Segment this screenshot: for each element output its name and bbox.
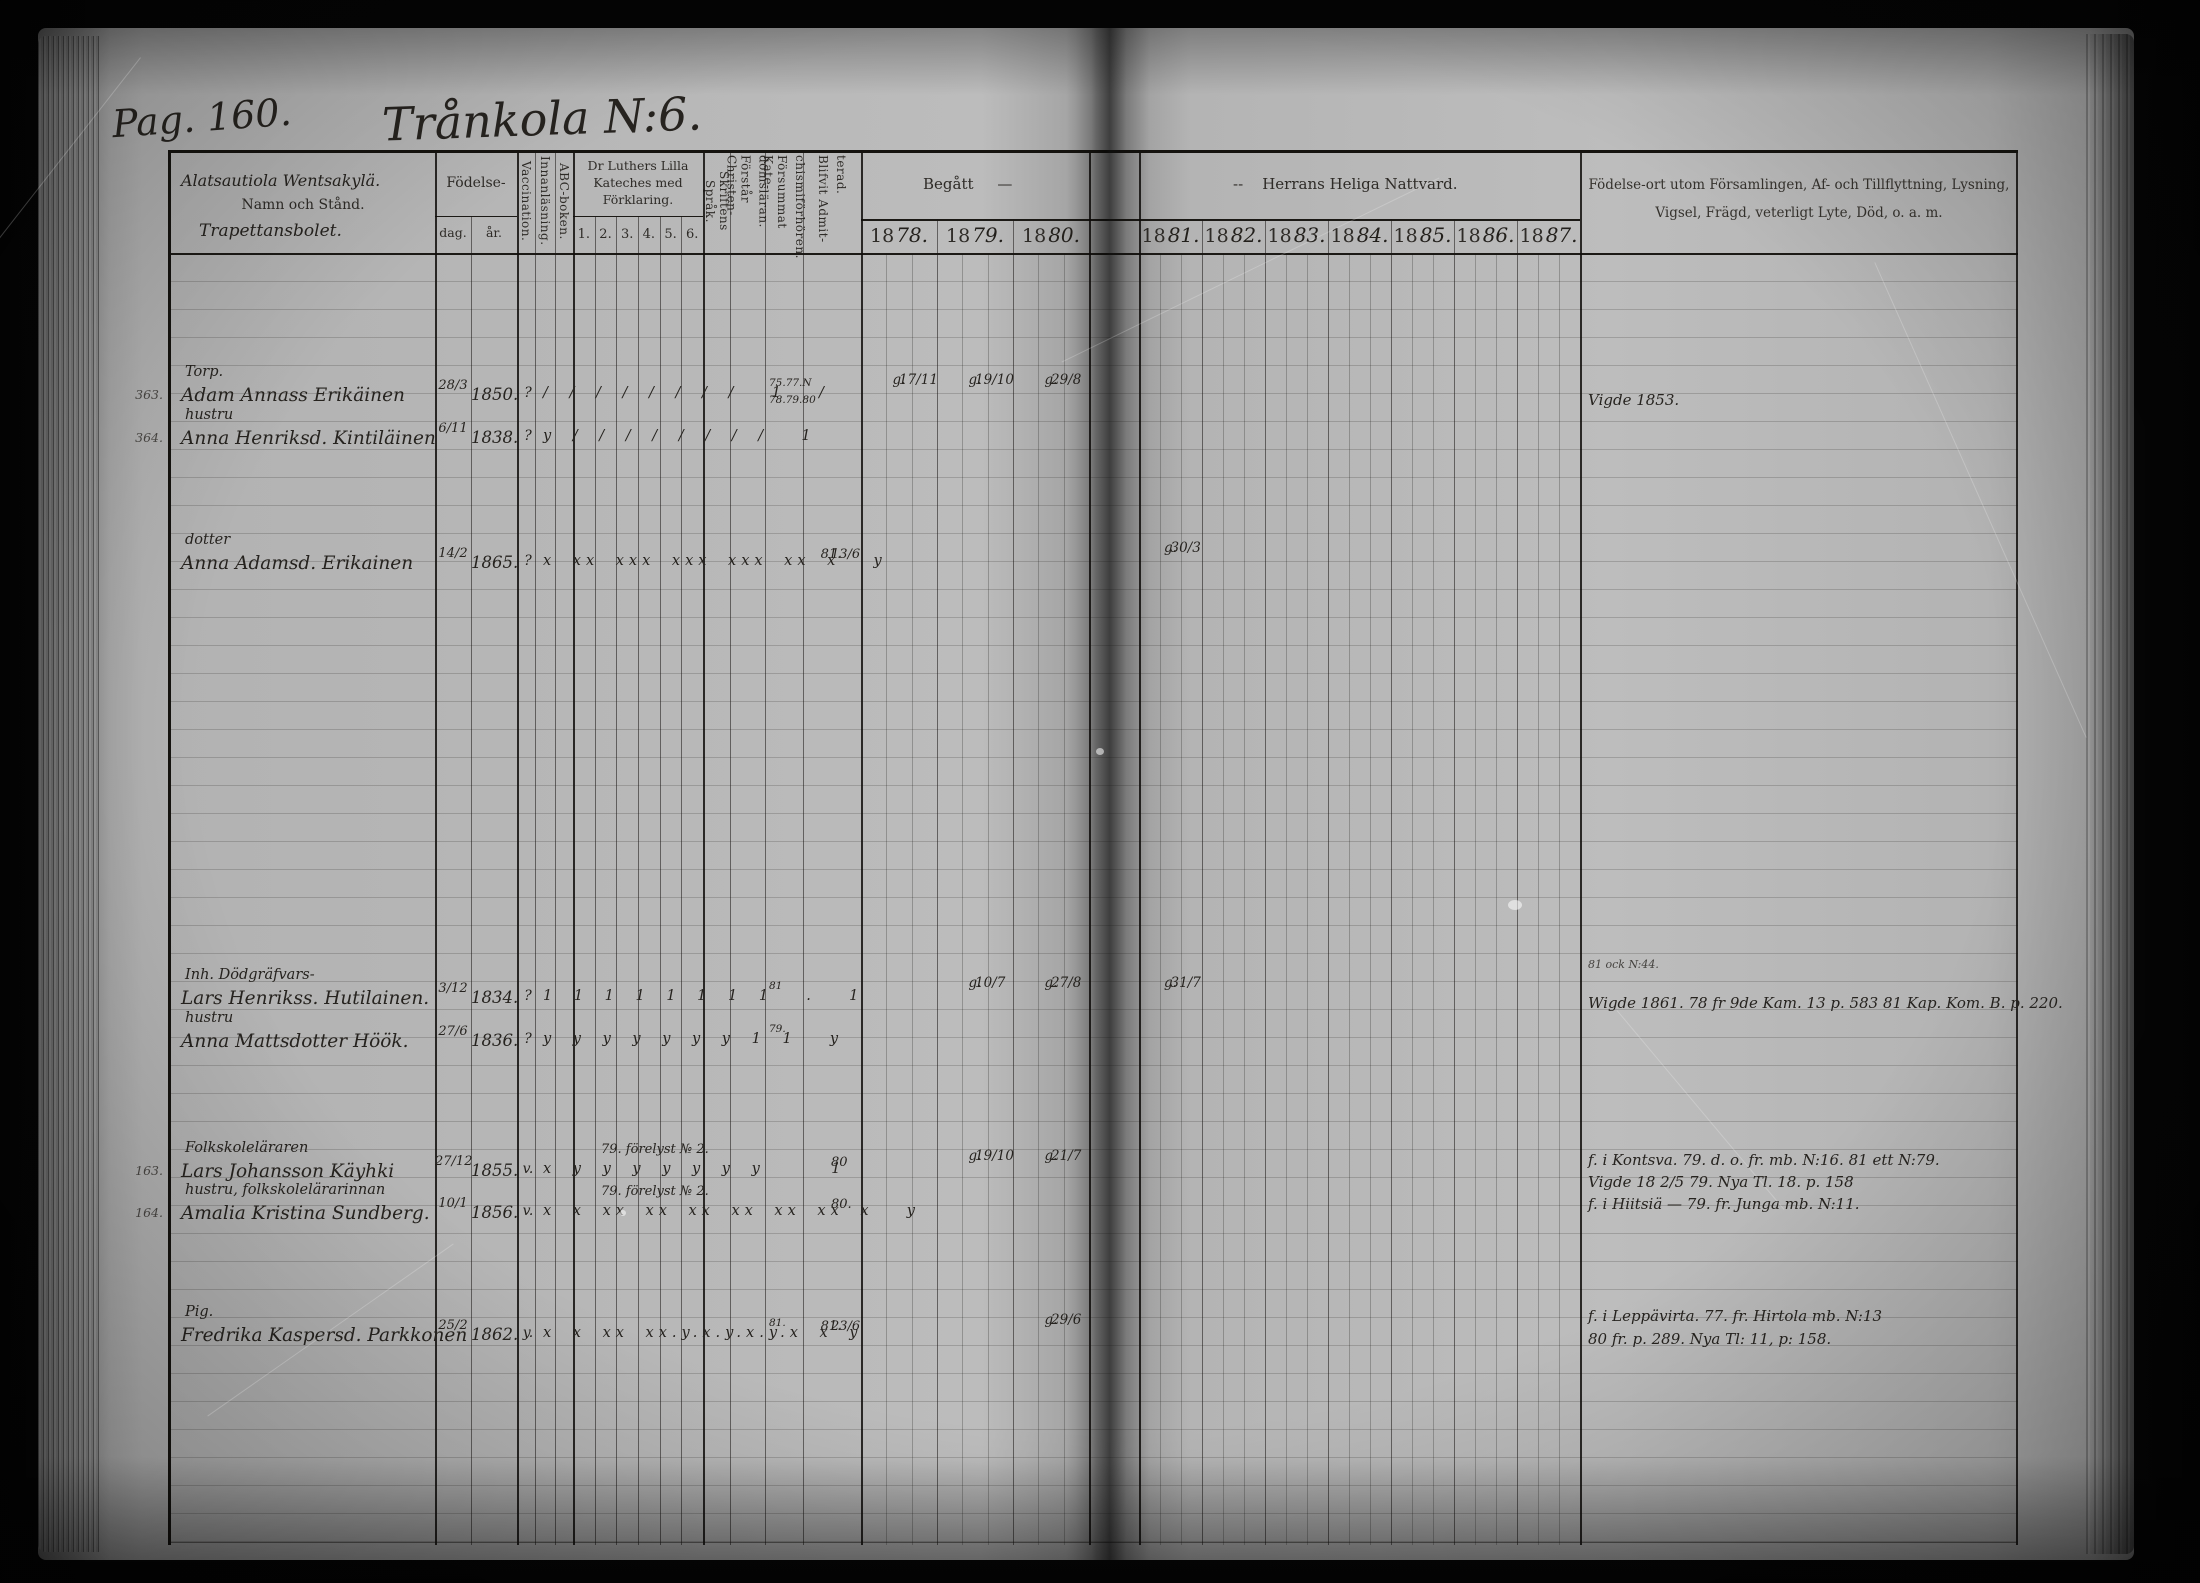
catechism-title-line2: Kateches med <box>573 175 703 190</box>
catechism-3: 3. <box>616 219 638 253</box>
remarks-note: Wigde 1861. 78 fr 9de Kam. 13 p. 583 81 … <box>1588 994 2068 1012</box>
years-top-rule <box>861 219 1580 221</box>
birth-day: 14/2 <box>435 547 471 560</box>
entry-number: 364. <box>117 430 163 445</box>
birth-year: 1855. <box>471 1161 517 1180</box>
catechism-4: 4. <box>638 219 660 253</box>
remarks-note-small: 81 ock N:44. <box>1588 958 1659 971</box>
year-1885: 1885. <box>1391 219 1454 253</box>
catechism-6: 6. <box>681 219 703 253</box>
communion-1881: 30/3g. <box>1139 541 1202 556</box>
page-stack-edge-right <box>2086 34 2134 1554</box>
page-stack-edge-left <box>38 36 100 1552</box>
entry-number: 164. <box>117 1205 163 1220</box>
vaccination-mark: ? <box>518 988 538 1004</box>
vaccination-label: Vaccination. <box>519 153 533 249</box>
admitted-date: 23/681. <box>803 1319 859 1334</box>
communion-label-right: -- Herrans Heliga Nattvard. <box>1233 175 1458 193</box>
year-1886: 1886. <box>1454 219 1517 253</box>
table-row: dotter Anna Adamsd. Erikainen 14/2 1865.… <box>171 553 2018 593</box>
birth-day: 27/12 <box>435 1155 471 1168</box>
header-birth-column: Födelse- dag. år. <box>435 153 517 253</box>
household-label: hustru <box>185 1010 233 1026</box>
birth-year: 1862. <box>471 1325 517 1344</box>
birth-year: 1838. <box>471 428 517 447</box>
year-1878: 1878. <box>861 219 937 253</box>
birth-day: 6/11 <box>435 422 471 435</box>
table-row: Pig. Fredrika Kaspersd. Parkkonen 25/2 1… <box>171 1325 2018 1365</box>
farm-name-handwritten: Trapettansbolet. <box>199 221 342 241</box>
household-label: Folkskoleläraren <box>185 1140 308 1156</box>
examination-marks: x x xx xx xx xx xx xx x y <box>543 1203 765 1219</box>
person-name: Anna Adamsd. Erikainen <box>181 553 435 574</box>
remarks-note: f. i Leppävirta. 77. fr. Hirtola mb. N:1… <box>1588 1307 2068 1325</box>
birth-day-label: dag. <box>435 225 471 240</box>
table-row: Inh. Dödgräfvars- Lars Henrikss. Hutilai… <box>171 988 2018 1028</box>
examination-marks: x y y y y y y y 1 <box>543 1161 765 1177</box>
year-1881: 1881. <box>1139 219 1202 253</box>
table-row: 163. Folkskoleläraren Lars Johansson Käy… <box>171 1161 2018 1201</box>
birth-day: 3/12 <box>435 982 471 995</box>
reading-label: Innanläsning. <box>538 153 552 249</box>
person-name: Lars Henrikss. Hutilainen. <box>181 988 435 1009</box>
person-name: Anna Mattsdotter Höök. <box>181 1031 435 1052</box>
admitted-label-line2: terad. <box>834 155 848 251</box>
examination-marks: x x xx xx.y.x.y.x.y.x x y <box>543 1325 765 1341</box>
household-label: dotter <box>185 532 230 548</box>
person-name: Fredrika Kaspersd. Parkkonen <box>181 1325 435 1346</box>
catechism-2: 2. <box>595 219 617 253</box>
remarks-note: Vigde 18 2/5 79. Nya Tl. 18. p. 158 <box>1588 1173 2068 1191</box>
birth-year: 1865. <box>471 553 517 572</box>
vaccination-mark: ? <box>518 385 538 401</box>
year-1880: 1880. <box>1013 219 1089 253</box>
table-row: 364. hustru Anna Henriksd. Kintiläinen 6… <box>171 428 2018 468</box>
birth-year: 1856. <box>471 1203 517 1222</box>
abc-book-label: ABC-boken. <box>557 153 571 249</box>
notes-header-line2: Vigsel, Frägd, veterligt Lyte, Död, o. a… <box>1580 205 2018 221</box>
vaccination-mark: y. <box>518 1325 538 1341</box>
examination-marks: y y y y y y y 1 1 y <box>543 1031 765 1047</box>
vaccination-mark: ? <box>518 428 538 444</box>
household-label: Pig. <box>185 1304 213 1320</box>
communion-label-left: Begått — <box>923 175 1012 193</box>
birth-day: 10/1 <box>435 1197 471 1210</box>
notes-header-line1: Födelse-ort utom Församlingen, Af- och T… <box>1580 177 2018 193</box>
banns-note: 79. förelyst № 2. <box>601 1184 841 1199</box>
birth-year: 1850. <box>471 385 517 404</box>
header-name-column: Alatsautiola Wentsakylä. Namn och Stånd.… <box>171 153 435 253</box>
remarks-note: Vigde 1853. <box>1588 391 2068 409</box>
year-1882: 1882. <box>1202 219 1265 253</box>
catechism-title-line1: Dr Luthers Lilla <box>573 158 703 173</box>
communion-1879: 19/10g. <box>937 1149 1013 1164</box>
birth-day: 27/6 <box>435 1025 471 1038</box>
birth-day: 28/3 <box>435 379 471 392</box>
table-entries: 363. Torp. Adam Annass Erikäinen 28/3 18… <box>171 253 2018 1543</box>
missed-hearings-note: 75.77.N78.79.80 <box>769 375 825 409</box>
table-row: hustru Anna Mattsdotter Höök. 27/6 1836.… <box>171 1031 2018 1071</box>
communion-1880: 27/8g. <box>1013 976 1089 991</box>
communion-1878: 17/11g. <box>861 373 937 388</box>
year-1883: 1883. <box>1265 219 1328 253</box>
household-label: Torp. <box>185 364 223 380</box>
communion-1879: 19/10g. <box>937 373 1013 388</box>
birth-year: 1834. <box>471 988 517 1007</box>
header-understands-column: Förstår Christen- domsläran. <box>730 153 765 253</box>
scanned-register-photo: Pag. 160. Trånkola N:6. Alatsautiola Wen… <box>0 0 2200 1583</box>
table-row: 164. hustru, folkskolelärarinnan Amalia … <box>171 1203 2018 1243</box>
table-row: 363. Torp. Adam Annass Erikäinen 28/3 18… <box>171 385 2018 425</box>
communion-1879: 10/7g. <box>937 976 1013 991</box>
birth-day: 25/2 <box>435 1319 471 1332</box>
admitted-label-line1: Blifvit Admit- <box>816 155 830 251</box>
catechism-1: 1. <box>573 219 595 253</box>
header-admitted-column: Blifvit Admit- terad. <box>803 153 861 253</box>
register-table: Alatsautiola Wentsakylä. Namn och Stånd.… <box>168 150 2018 1545</box>
communion-1880: 21/7g. <box>1013 1149 1089 1164</box>
understands-label-line1: Förstår Christen- <box>725 155 753 251</box>
missed-hearings-note: 81 <box>769 978 825 995</box>
examination-marks: x xx xxx xxx xxx xx x y <box>543 553 765 569</box>
birth-label: Födelse- <box>435 175 517 191</box>
birth-year: 1836. <box>471 1031 517 1050</box>
year-1884: 1884. <box>1328 219 1391 253</box>
birth-subheader-rule <box>435 216 517 217</box>
admitted-date: 13/681. <box>803 547 859 562</box>
entry-number: 163. <box>117 1163 163 1178</box>
examination-marks: / / / / / / / / 1 / <box>543 385 765 401</box>
missed-hearings-note: 79. <box>769 1021 825 1038</box>
table-header: Alatsautiola Wentsakylä. Namn och Stånd.… <box>171 153 2018 253</box>
village-name-handwritten: Alatsautiola Wentsakylä. <box>181 171 380 190</box>
year-1887: 1887. <box>1517 219 1580 253</box>
catechism-title-line3: Förklaring. <box>573 192 703 207</box>
name-column-label: Namn och Stånd. <box>171 197 435 213</box>
examination-marks: y / / / / / / / / 1 <box>543 428 765 444</box>
year-1879: 1879. <box>937 219 1013 253</box>
banns-note: 79. förelyst № 2. <box>601 1142 841 1157</box>
remarks-note: 80 fr. p. 289. Nya Tl: 11, p: 158. <box>1588 1330 2068 1348</box>
person-name: Amalia Kristina Sundberg. <box>181 1203 435 1224</box>
vaccination-mark: ? <box>518 1031 538 1047</box>
examination-marks: 1 1 1 1 1 1 1 1 . 1 <box>543 988 765 1004</box>
header-notes-column: Födelse-ort utom Församlingen, Af- och T… <box>1580 153 2018 253</box>
vaccination-mark: v. <box>518 1161 538 1177</box>
household-label: hustru, folkskolelärarinnan <box>185 1182 385 1198</box>
header-abc-column: ABC-boken. <box>555 153 573 253</box>
person-name: Lars Johansson Käyhki <box>181 1161 435 1182</box>
catechism-5: 5. <box>660 219 682 253</box>
header-reading-column: Innanläsning. <box>535 153 555 253</box>
vaccination-mark: ? <box>518 553 538 569</box>
remarks-note: f. i Kontsva. 79. d. o. fr. mb. N:16. 81… <box>1588 1151 2068 1169</box>
person-name: Anna Henriksd. Kintiläinen <box>181 428 435 449</box>
communion-1881: 31/7g. <box>1139 976 1202 991</box>
page-title: Trånkola N:6. <box>381 86 703 151</box>
person-name: Adam Annass Erikäinen <box>181 385 435 406</box>
header-missed-column: Försummat Kate- chismiförhören. <box>765 153 803 253</box>
header-vaccination-column: Vaccination. <box>517 153 535 253</box>
communion-1880: 29/6g. <box>1013 1313 1089 1328</box>
entry-number: 363. <box>117 387 163 402</box>
household-label: hustru <box>185 407 233 423</box>
communion-1880: 29/8g. <box>1013 373 1089 388</box>
birth-year-label: år. <box>471 225 517 240</box>
vaccination-mark: v. <box>518 1203 538 1219</box>
household-label: Inh. Dödgräfvars- <box>185 967 315 983</box>
